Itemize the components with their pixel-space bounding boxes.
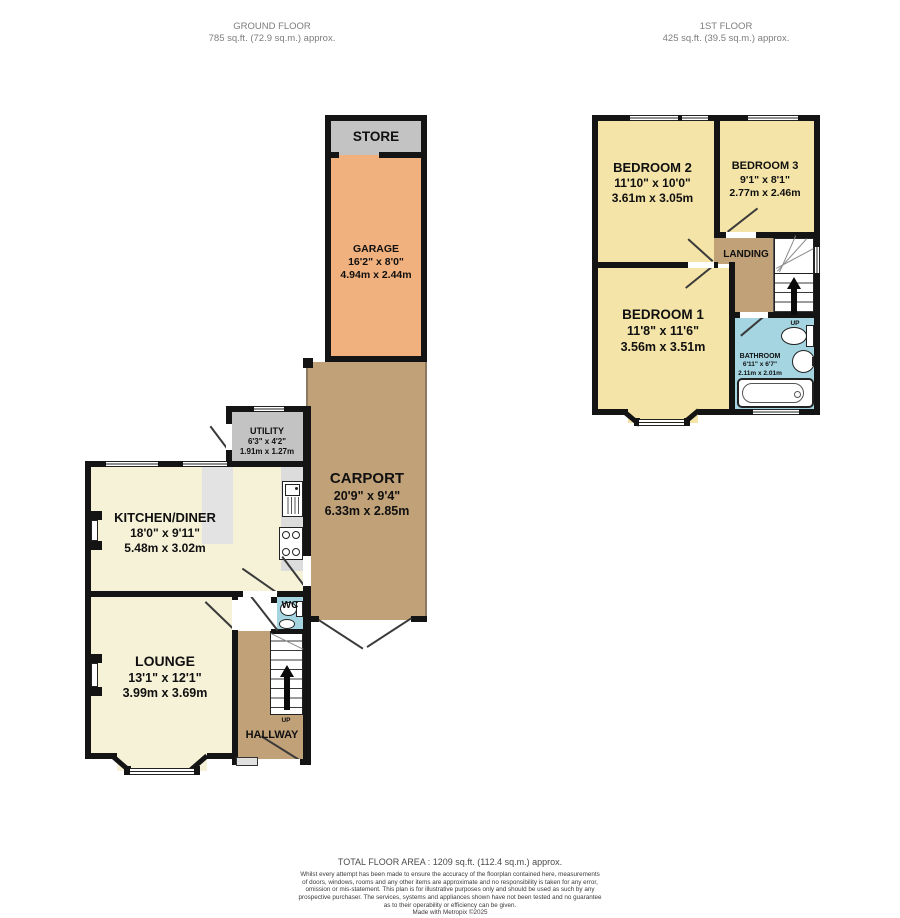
kitchen-fireplace-recess <box>91 520 98 541</box>
bathroom-window <box>753 409 799 415</box>
room-name: LOUNGE <box>103 653 227 671</box>
bedroom3-label: BEDROOM 3 9'1" x 8'1" 2.77m x 2.46m <box>710 160 820 200</box>
stairs-window <box>814 247 820 273</box>
bedroom2-window <box>630 115 678 121</box>
wall <box>85 461 91 597</box>
room-dim-ft: 18'0" x 9'11" <box>105 526 225 541</box>
first-floor-area: 425 sq.ft. (39.5 sq.m.) approx. <box>576 33 876 45</box>
bathroom-door-gap <box>740 312 768 318</box>
room-dim-m: 4.94m x 2.44m <box>326 269 426 282</box>
lounge-door-gap <box>232 600 238 630</box>
up-arrow-icon <box>791 288 797 315</box>
room-dim-m: 5.48m x 3.02m <box>105 541 225 556</box>
bay-cap <box>193 766 200 775</box>
lounge-fireplace-recess <box>91 663 98 687</box>
bedroom2-window <box>682 115 708 121</box>
room-name: BEDROOM 1 <box>603 307 723 324</box>
room-dim-ft: 11'10" x 10'0" <box>595 176 710 191</box>
total-floor-area: TOTAL FLOOR AREA : 1209 sq.ft. (112.4 sq… <box>0 857 900 867</box>
room-name: KITCHEN/DINER <box>105 510 225 526</box>
lounge-bay-window <box>130 768 194 775</box>
room-dim-m: 3.61m x 3.05m <box>595 191 710 206</box>
disclaimer-line: of doors, windows, rooms and any other i… <box>0 879 900 887</box>
room-dim-ft: 11'8" x 11'6" <box>603 324 723 340</box>
utility-label: UTILITY 6'3" x 4'2" 1.91m x 1.27m <box>227 426 307 457</box>
room-dim-ft: 9'1" x 8'1" <box>710 174 820 187</box>
wall <box>325 115 427 121</box>
kitchen-carport-door-gap <box>303 556 311 586</box>
burner <box>282 548 290 556</box>
room-name: HALLWAY <box>230 729 314 743</box>
room-dim-ft: 20'9" x 9'4" <box>312 489 422 505</box>
ground-floor-title: GROUND FLOOR <box>122 21 422 33</box>
room-name: WC <box>277 600 303 613</box>
wall <box>325 356 427 362</box>
disclaimer-line: omission or mis-statement. This plan is … <box>0 886 900 894</box>
room-name: BATHROOM <box>728 352 792 361</box>
room-name: LANDING <box>706 249 786 262</box>
wall <box>325 152 339 158</box>
carport-open-edge <box>306 362 308 412</box>
bedroom1-bay-window <box>639 419 684 426</box>
wc-label: WC <box>277 600 303 613</box>
bathroom-label: BATHROOM 6'11" x 6'7" 2.11m x 2.01m <box>728 352 792 379</box>
lounge-label: LOUNGE 13'1" x 12'1" 3.99m x 3.69m <box>103 653 227 702</box>
room-dim-ft: 6'3" x 4'2" <box>227 437 307 447</box>
utility-window <box>254 406 284 412</box>
kitchen-chimney-breast <box>91 511 102 520</box>
ground-floor-header: GROUND FLOOR 785 sq.ft. (72.9 sq.m.) app… <box>122 21 422 46</box>
wall <box>85 597 91 759</box>
carport-door-leaf <box>318 619 363 649</box>
kitchen-chimney-breast <box>91 541 102 550</box>
bedroom-door-gap <box>688 262 714 268</box>
bathtub-icon <box>737 378 814 408</box>
disclaimer-line: prospective purchaser. The services, sys… <box>0 894 900 902</box>
room-dim-m: 6.33m x 2.85m <box>312 504 422 520</box>
sink-bowl <box>285 484 300 496</box>
room-name: BEDROOM 3 <box>710 160 820 174</box>
sink-icon <box>282 481 303 517</box>
up-arrow-icon <box>284 676 290 710</box>
room-name: BEDROOM 2 <box>595 160 710 176</box>
room-dim-ft: 6'11" x 6'7" <box>728 361 792 370</box>
burner <box>292 548 300 556</box>
lounge-chimney-breast <box>91 687 102 696</box>
sink-tap <box>295 487 298 490</box>
room-dim-ft: 13'1" x 12'1" <box>103 671 227 687</box>
disclaimer-line: Whilst every attempt has been made to en… <box>0 871 900 879</box>
first-floor-title: 1ST FLOOR <box>576 21 876 33</box>
ground-floor-area: 785 sq.ft. (72.9 sq.m.) approx. <box>122 33 422 45</box>
sink-drainer <box>285 497 300 514</box>
wall <box>379 152 427 158</box>
bedroom1-label: BEDROOM 1 11'8" x 11'6" 3.56m x 3.51m <box>603 307 723 355</box>
room-name: STORE <box>326 129 426 146</box>
room-dim-m: 2.77m x 2.46m <box>710 187 820 200</box>
lounge-chimney-breast <box>91 654 102 663</box>
kitchen-window <box>183 461 227 467</box>
up-label: UP <box>780 320 810 327</box>
bay-cap <box>684 418 690 426</box>
room-dim-m: 2.11m x 2.01m <box>728 370 792 379</box>
hallway-label: HALLWAY <box>230 729 314 743</box>
carport-label: CARPORT 20'9" x 9'4" 6.33m x 2.85m <box>312 470 422 520</box>
room-dim-ft: 16'2" x 8'0" <box>326 256 426 269</box>
bedroom3-window <box>748 115 798 121</box>
disclaimer: Whilst every attempt has been made to en… <box>0 871 900 917</box>
front-door-threshold <box>236 757 258 766</box>
room-dim-m: 1.91m x 1.27m <box>227 447 307 457</box>
front-door-gap <box>258 759 300 765</box>
kitchen-label: KITCHEN/DINER 18'0" x 9'11" 5.48m x 3.02… <box>105 510 225 556</box>
wall <box>411 616 427 622</box>
room-name: CARPORT <box>312 470 422 489</box>
up-label: UP <box>272 717 300 724</box>
toilet-icon <box>806 325 814 347</box>
garage-label: GARAGE 16'2" x 8'0" 4.94m x 2.44m <box>326 243 426 282</box>
first-floor-header: 1ST FLOOR 425 sq.ft. (39.5 sq.m.) approx… <box>576 21 876 46</box>
credit-line: Made with Metropix ©2025 <box>0 909 900 917</box>
room-dim-m: 3.56m x 3.51m <box>603 340 723 356</box>
burner <box>292 531 300 539</box>
bedroom3-door-gap <box>726 232 756 238</box>
store-label: STORE <box>326 129 426 146</box>
room-name: UTILITY <box>227 426 307 437</box>
floorplan-canvas: GROUND FLOOR 785 sq.ft. (72.9 sq.m.) app… <box>0 0 900 918</box>
landing-label: LANDING <box>706 249 786 262</box>
bedroom2-label: BEDROOM 2 11'10" x 10'0" 3.61m x 3.05m <box>595 160 710 206</box>
toilet-icon <box>781 327 807 345</box>
bathtub-drain <box>794 391 801 398</box>
wall <box>303 358 313 368</box>
burner <box>282 531 290 539</box>
basin-icon <box>279 619 295 629</box>
carport-open-edge <box>425 362 427 620</box>
kitchen-window <box>106 461 158 467</box>
carport-door-leaf <box>367 618 412 648</box>
kitchen-door-gap <box>243 591 277 597</box>
room-dim-m: 3.99m x 3.69m <box>103 686 227 702</box>
room-name: GARAGE <box>326 243 426 256</box>
wall <box>729 262 735 415</box>
